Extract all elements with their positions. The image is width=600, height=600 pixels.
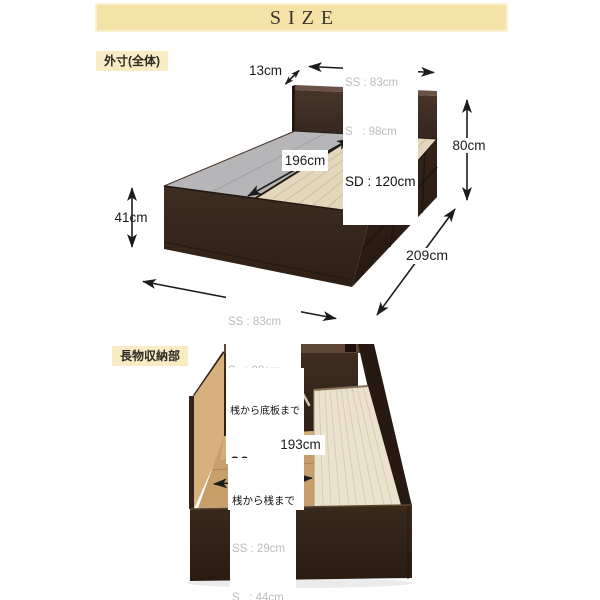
size-header: SIZE [95, 3, 508, 32]
headboard-side-edge [292, 85, 295, 133]
dim-width-top-s: S : 98cm [345, 126, 416, 139]
dim-headboard-depth: 13cm [249, 63, 282, 78]
page-title: SIZE [263, 8, 340, 28]
dim-width-top-ss: SS : 83cm [345, 77, 416, 90]
dim-storage-width-s: S : 44cm [232, 592, 294, 600]
section-label-storage: 長物収納部 [112, 346, 188, 366]
dim-storage-depth-caption: 桟から底板まで [230, 406, 302, 417]
product-size-diagram: SIZE 外寸(全体) 長物収納部 SS : 83cm S : 98cm SD … [0, 0, 600, 600]
dim-width-top: SS : 83cm S : 98cm SD : 120cm [343, 41, 418, 225]
section-label-overall: 外寸(全体) [96, 51, 168, 71]
front-panel [190, 505, 412, 581]
dim-width-top-sd: SD : 120cm [345, 174, 416, 189]
dim-storage-width-caption: 桟から桟まで [232, 496, 294, 508]
dim-storage-width-ss: SS : 29cm [232, 543, 294, 556]
left-wall-edge [189, 396, 194, 509]
dim-height: 80cm [450, 138, 488, 153]
dim-storage-width: 桟から桟まで SS : 29cm S : 44cm SD : 66cm [230, 458, 296, 600]
dim-surface-length: 196cm [282, 150, 328, 171]
dim-base-height: 41cm [112, 210, 150, 225]
dim-storage-length: 193cm [276, 435, 325, 455]
arrow-headboard-depth [286, 71, 300, 85]
dim-width-bottom-ss: SS : 83cm [228, 316, 299, 329]
dim-total-length: 209cm [396, 248, 458, 264]
